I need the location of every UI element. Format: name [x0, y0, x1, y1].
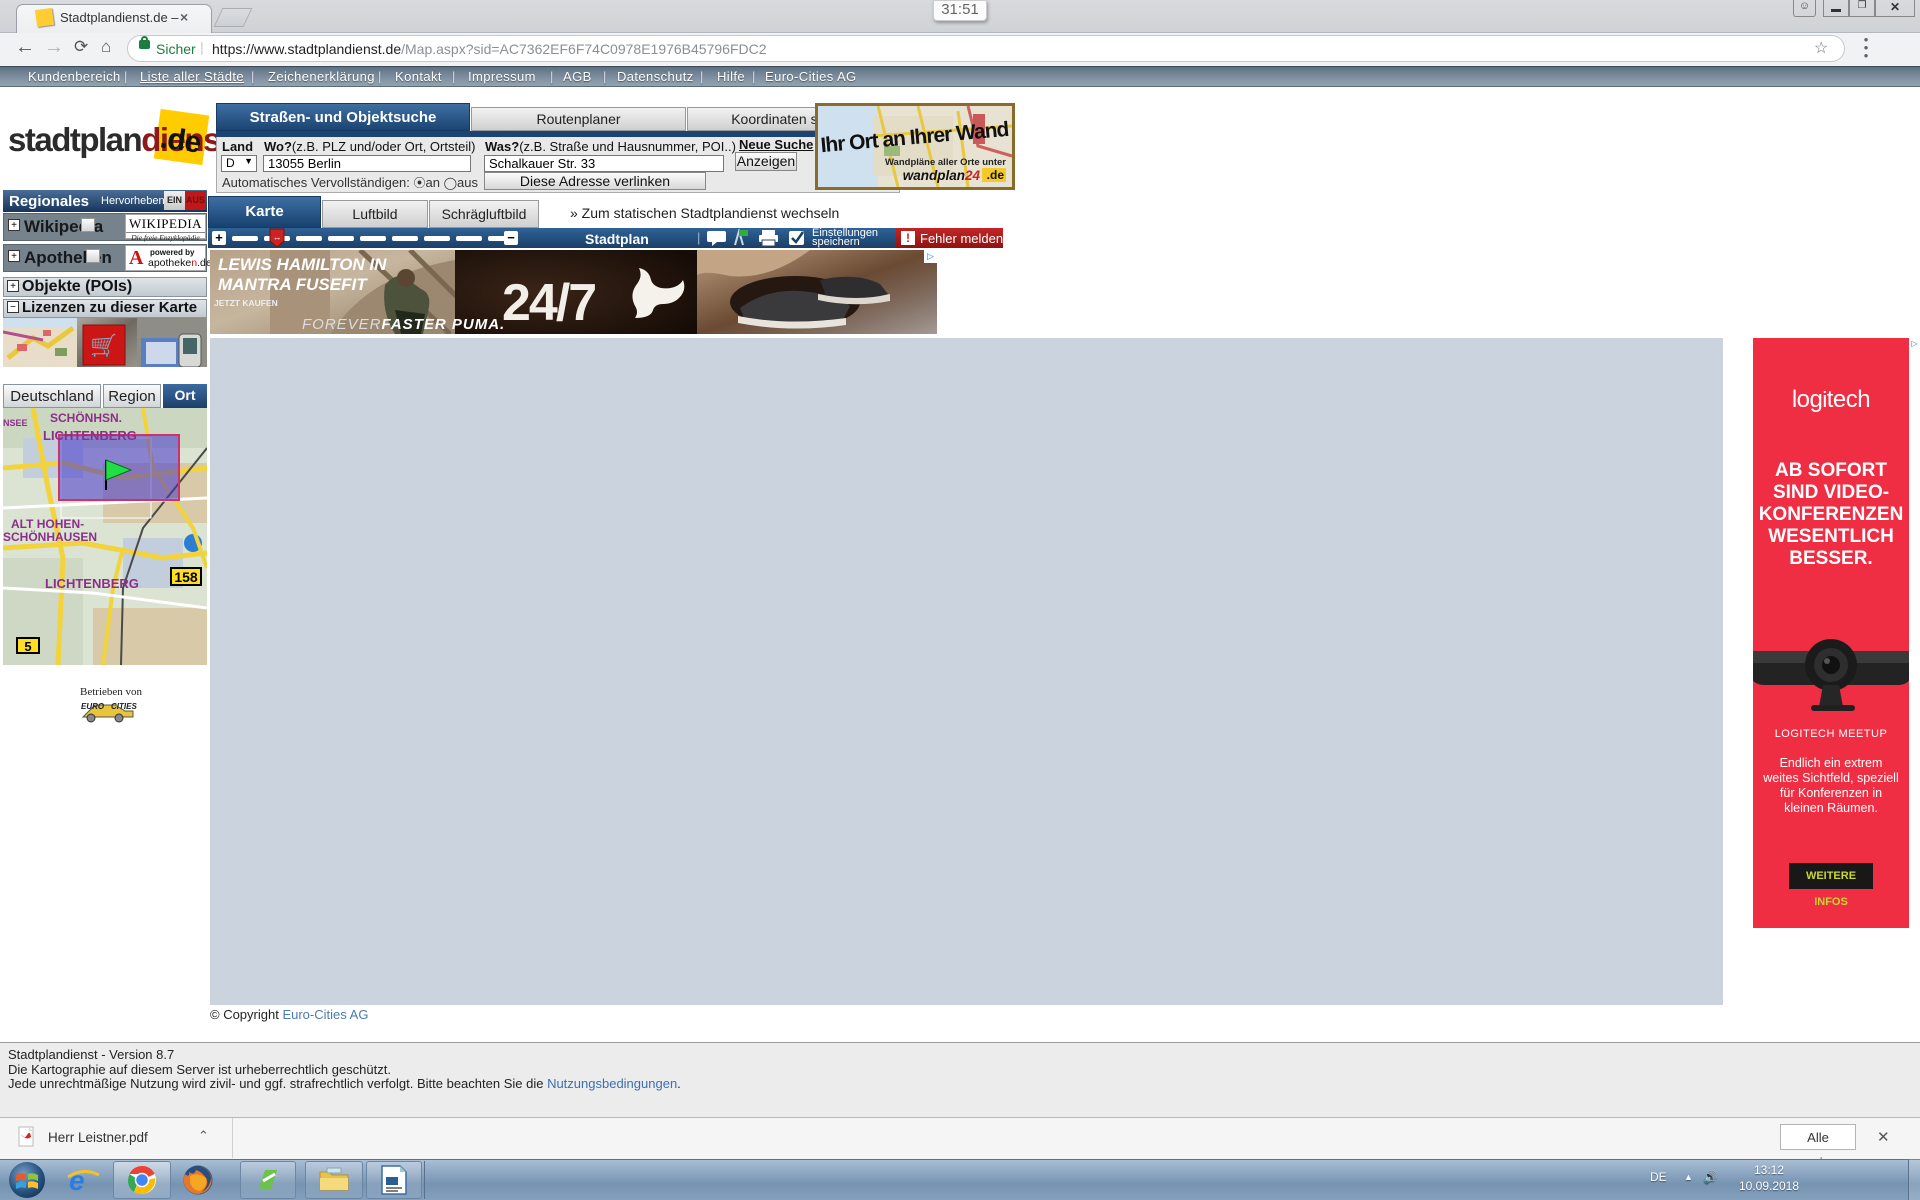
- svg-text:CITIES: CITIES: [111, 702, 137, 711]
- svg-text:EURO: EURO: [81, 702, 105, 711]
- svg-text:SCHÖNHAUSEN: SCHÖNHAUSEN: [3, 529, 97, 544]
- svg-text:Wandpläne aller Orte unter: Wandpläne aller Orte unter: [885, 157, 1006, 168]
- svg-text:NSEE: NSEE: [3, 418, 28, 428]
- svg-text:MANTRA FUSEFIT: MANTRA FUSEFIT: [218, 275, 368, 294]
- svg-text:FOREVERFASTER PUMA.: FOREVERFASTER PUMA.: [302, 316, 505, 333]
- svg-text:24/7: 24/7: [502, 274, 595, 332]
- svg-text:5: 5: [24, 639, 31, 654]
- svg-text:JETZT KAUFEN: JETZT KAUFEN: [214, 298, 278, 308]
- svg-text:SCHÖNHSN.: SCHÖNHSN.: [50, 410, 122, 425]
- svg-text:wandplan24: wandplan24: [903, 168, 981, 183]
- svg-text:158: 158: [174, 569, 198, 585]
- svg-text:LICHTENBERG: LICHTENBERG: [45, 576, 139, 591]
- svg-text:e: e: [69, 1165, 85, 1195]
- svg-text:LEWIS HAMILTON IN: LEWIS HAMILTON IN: [218, 255, 387, 274]
- svg-text:.de: .de: [987, 168, 1005, 182]
- svg-text:LICHTENBERG: LICHTENBERG: [43, 428, 137, 443]
- svg-text:↔: ↔: [273, 232, 282, 242]
- svg-text:🛒: 🛒: [90, 333, 117, 358]
- svg-text:ALT HOHEN-: ALT HOHEN-: [11, 517, 84, 531]
